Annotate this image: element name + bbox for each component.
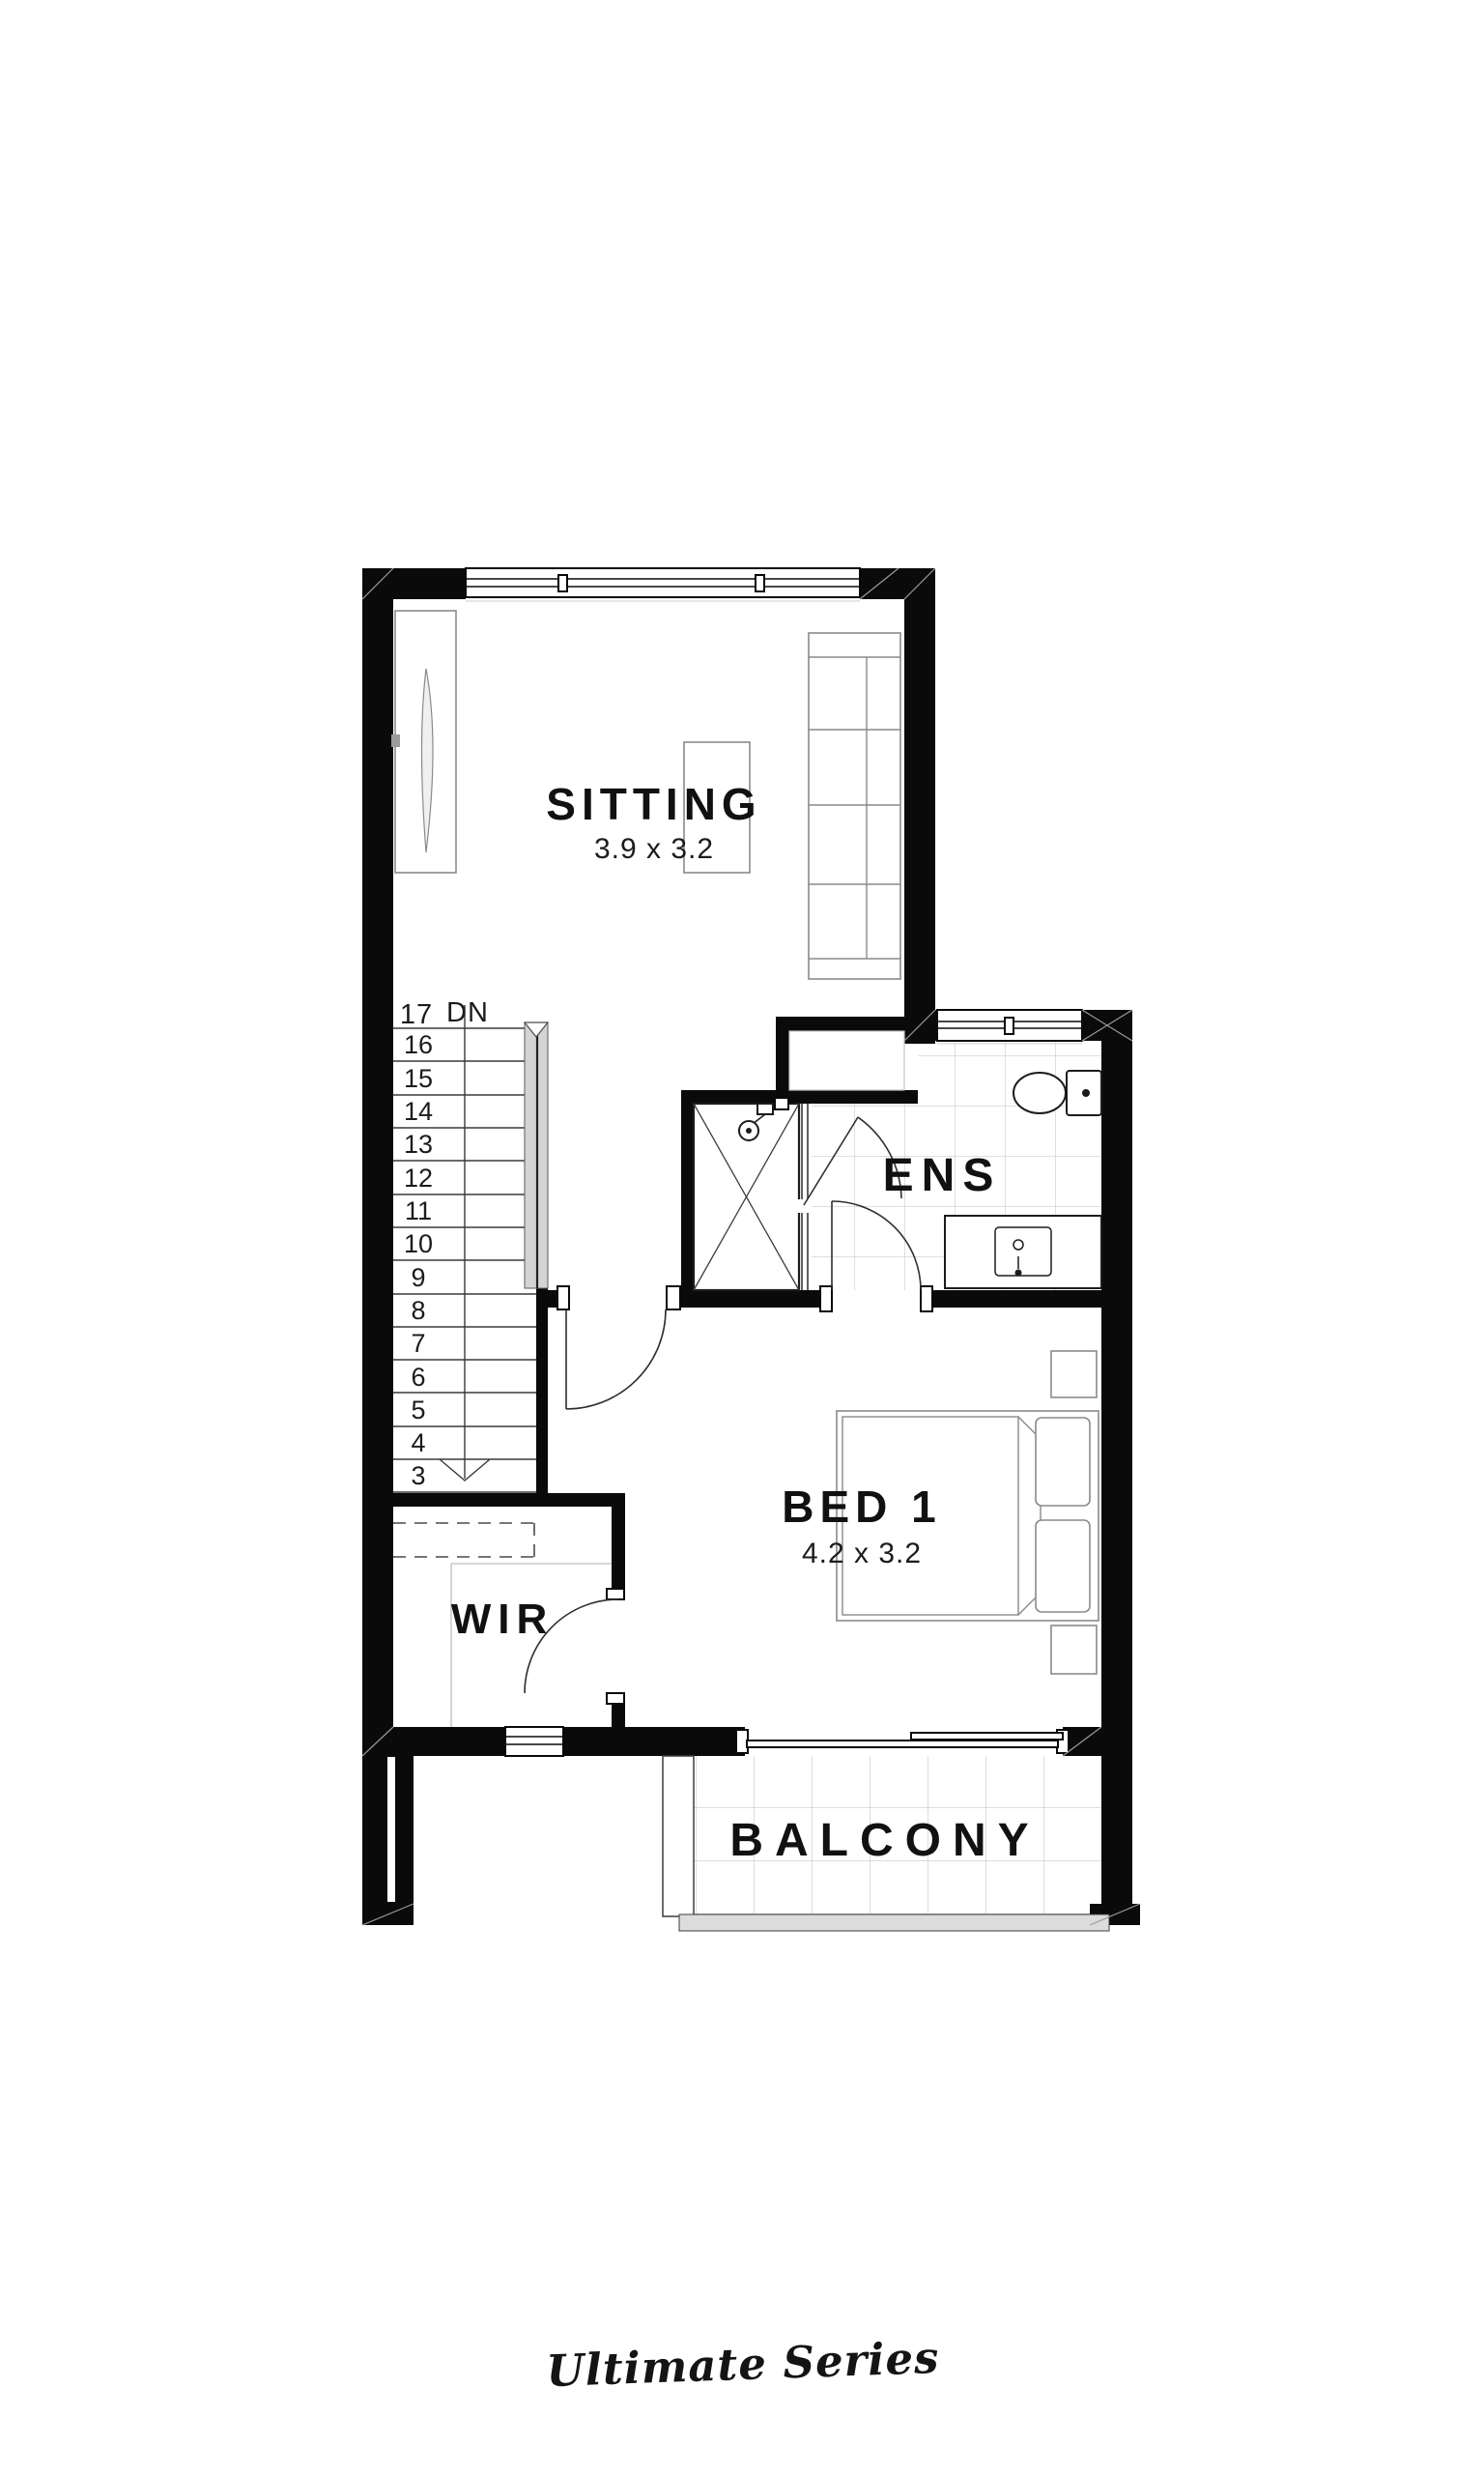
wall-shower-west — [681, 1090, 694, 1308]
bedside-table — [1051, 1351, 1097, 1397]
balcony-side-wall — [663, 1756, 694, 1916]
toilet-icon — [1013, 1071, 1101, 1115]
stair-direction-label: DN — [446, 997, 489, 1028]
stair-number: 11 — [405, 1196, 432, 1225]
stair-top-step-label: 17 — [400, 999, 433, 1030]
stair-number: 16 — [404, 1030, 433, 1059]
stair-number: 3 — [411, 1461, 425, 1490]
pillow — [1036, 1418, 1090, 1506]
stairs: 17 DN 16 15 14 13 12 11 10 9 8 7 6 5 4 3 — [393, 997, 548, 1492]
tap-icon — [1015, 1270, 1022, 1277]
wall-bottom-mid — [563, 1727, 745, 1756]
stair-direction — [440, 1005, 490, 1481]
balcony-step-edge — [679, 1914, 1109, 1931]
wall-wir-north — [362, 1493, 625, 1507]
floor-plan-page: 17 DN 16 15 14 13 12 11 10 9 8 7 6 5 4 3 — [0, 0, 1484, 2474]
stair-number: 14 — [404, 1097, 433, 1126]
stair-number: 4 — [411, 1428, 425, 1457]
window-sitting-north — [466, 568, 860, 597]
vanity — [945, 1216, 1101, 1288]
ens-label: ENS — [883, 1150, 1002, 1201]
window-wir-south — [505, 1727, 563, 1756]
stair-number: 13 — [404, 1130, 433, 1159]
stair-number: 10 — [404, 1229, 433, 1258]
wall-right — [1101, 1010, 1132, 1904]
shower-door-hinge-gap — [796, 1199, 812, 1213]
wall-wir-east-lower — [612, 1704, 625, 1727]
wall-shower-north — [681, 1090, 918, 1104]
sofa — [809, 633, 900, 979]
series-brand-text: Ultimate Series — [546, 2332, 941, 2397]
stair-number: 12 — [404, 1164, 433, 1193]
sitting-label: SITTING — [546, 779, 761, 829]
wall-stair-side — [536, 1288, 548, 1493]
stair-number: 7 — [411, 1329, 425, 1358]
tv-bracket — [391, 734, 400, 747]
stair-number: 6 — [411, 1363, 425, 1392]
stair-number: 15 — [404, 1064, 433, 1093]
window-ens-north — [937, 1010, 1082, 1041]
stair-number: 5 — [411, 1395, 425, 1424]
stair-rail — [525, 1022, 548, 1288]
wall-niche-top — [776, 1017, 905, 1031]
wall-wir-east-upper — [612, 1493, 625, 1589]
pillow — [1036, 1520, 1090, 1612]
bed1-label: BED 1 — [782, 1482, 941, 1532]
storage-niche — [789, 1031, 904, 1090]
wall-sitting-right — [904, 568, 935, 1044]
balcony-sliding-door — [736, 1730, 1069, 1753]
wall-ens-south-east — [932, 1290, 1101, 1308]
bed1-dimensions: 4.2 x 3.2 — [802, 1538, 922, 1569]
wall-bottom-west — [362, 1727, 505, 1756]
bedside-table — [1051, 1625, 1097, 1674]
bed1-door — [557, 1286, 680, 1409]
tv-unit — [391, 611, 456, 873]
floor-plan-drawing: 17 DN 16 15 14 13 12 11 10 9 8 7 6 5 4 3 — [0, 0, 1484, 2474]
pier-left-slit — [387, 1757, 395, 1902]
balcony-label: BALCONY — [729, 1815, 1040, 1866]
stair-number: 8 — [411, 1296, 425, 1325]
wall-ens-south-west — [694, 1290, 820, 1308]
sitting-dimensions: 3.9 x 3.2 — [594, 833, 714, 865]
wir-label: WIR — [451, 1596, 555, 1643]
wall-left — [362, 568, 393, 1756]
stair-number: 9 — [411, 1263, 425, 1292]
